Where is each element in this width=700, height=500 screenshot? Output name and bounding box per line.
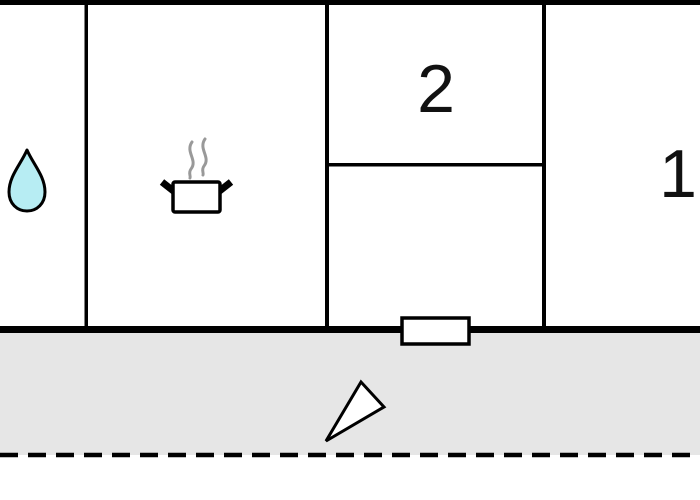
door-marker: [402, 318, 469, 344]
room2-divider-wall: [325, 163, 546, 167]
room-1-label: 1: [659, 136, 697, 212]
cooking-pot-icon: [162, 139, 231, 212]
floorplan-svg: 2 1: [0, 0, 700, 500]
bottom-exterior-wall: [0, 326, 700, 333]
floorplan-canvas: 2 1: [0, 0, 700, 500]
pot-body: [173, 182, 220, 212]
top-exterior-wall: [0, 0, 700, 5]
water-drop-icon: [9, 150, 45, 211]
steam-icon: [190, 139, 207, 178]
bathroom-kitchen-wall: [85, 3, 89, 330]
room-2-label: 2: [417, 51, 455, 127]
terrace-area: [0, 330, 700, 455]
